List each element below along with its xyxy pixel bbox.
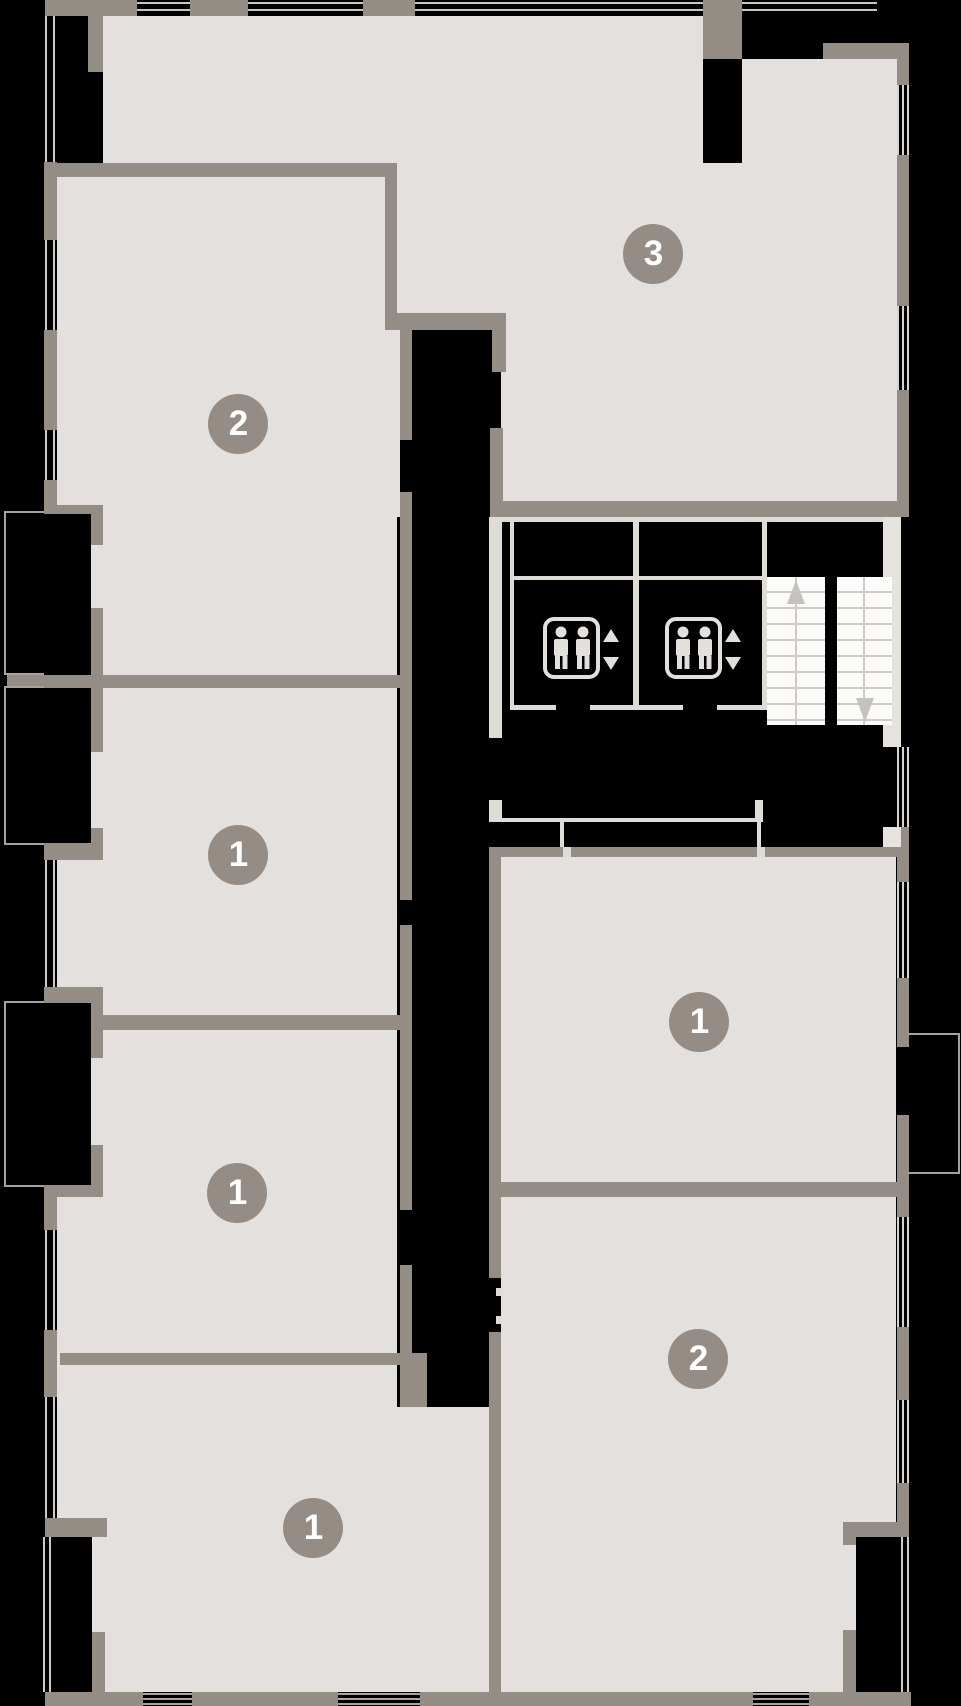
wall [192,1692,338,1706]
wall [44,1185,103,1197]
wall [400,925,412,1210]
wall [91,828,103,843]
elevator-passengers-icon [543,617,600,679]
wall [897,1483,909,1522]
wall [190,0,248,16]
stairs-up-arrow [787,580,805,604]
door-jamb [757,847,765,857]
wall [44,505,103,514]
door-jamb [496,1316,502,1324]
elevator-door-line [510,705,767,710]
wall [7,675,412,688]
wall [608,1692,753,1706]
wall [843,1630,856,1692]
floor-plan: 3 2 1 1 1 2 1 [0,0,961,1706]
balcony-outline [4,686,44,845]
wall [385,313,506,330]
stairs-down-arrow [856,698,874,722]
wall [91,688,103,752]
wall [843,1537,856,1545]
window [897,747,909,827]
wall [385,177,397,313]
balcony-outline [4,511,44,675]
window [897,306,909,390]
window [45,430,55,480]
wall [489,857,501,1182]
balcony-outline [908,1033,960,1174]
wall [44,162,57,240]
window [338,1693,420,1705]
elevator-shaft-wall [633,522,639,707]
wall [489,1182,909,1197]
wall [897,390,909,517]
wall [44,987,103,1003]
window [753,1693,809,1705]
wall [44,330,57,430]
window [897,1217,909,1327]
room-unit-1-bottom-ext [397,1407,489,1692]
wall [400,1353,427,1407]
wall [44,843,103,860]
wall [91,1145,103,1185]
elevator-door-gap [556,705,590,710]
wall [489,847,909,857]
window [897,1400,909,1483]
balcony-outline [4,1001,44,1187]
wall [44,163,397,177]
elevator-door-gap [683,705,717,710]
wall [490,501,909,517]
wall [92,1632,105,1692]
wall [489,1332,501,1692]
wall [400,1265,412,1353]
door-jamb [560,822,564,847]
unit-badge-3[interactable]: 3 [623,224,683,284]
wall [823,43,897,59]
elevator-up-down-arrows [725,629,741,671]
wall [103,1015,412,1030]
wall [400,330,412,440]
wall [44,1330,57,1397]
unit-badge-1-left-lower[interactable]: 1 [207,1163,267,1223]
window [897,85,909,155]
window [45,1397,55,1518]
unit-badge-2-right[interactable]: 2 [668,1329,728,1389]
window [897,882,909,978]
wall [60,1353,400,1365]
window [45,16,55,162]
wall [400,492,412,900]
core-left-wall [489,517,502,738]
wall [809,1692,911,1706]
stairwell-wall [883,827,901,847]
wall [91,608,103,675]
wall [843,1522,909,1537]
wall [88,13,103,72]
corridor [400,330,501,1407]
wall [45,1518,107,1537]
wall [703,0,742,59]
wall [897,1327,909,1400]
wall [897,155,909,306]
window [43,1537,51,1692]
room-unit-2-right [501,1197,896,1692]
core-top-line [501,517,896,522]
wall [45,1692,143,1706]
window [143,1693,192,1705]
door-jamb [563,847,571,857]
window [901,1537,909,1692]
wall [91,1003,103,1058]
room-unit-3-top-strip [103,16,703,170]
wall [420,1692,608,1706]
unit-badge-2-left[interactable]: 2 [208,394,268,454]
room-unit-3-top-right [742,59,897,170]
lobby-wall [501,818,755,822]
wall [492,330,506,372]
unit-badge-1-right[interactable]: 1 [669,992,729,1052]
elevator-passengers-icon [665,617,722,679]
window [45,860,55,987]
unit-badge-1-left-upper[interactable]: 1 [208,825,268,885]
elevator-shaft-wall [510,522,514,707]
wall [897,43,909,85]
wall [91,513,103,545]
window [45,240,55,330]
elevator-up-down-arrows [603,629,619,671]
window [45,1230,55,1330]
balcony-bottom-left [50,1537,92,1692]
door-jamb [496,1288,502,1296]
unit-badge-1-bottom[interactable]: 1 [283,1498,343,1558]
window-top-railing [45,2,877,11]
wall [44,1197,57,1230]
wall [363,0,415,16]
elevator-shaft-wall [510,576,767,580]
wall [489,1197,501,1278]
lobby-wall [755,800,763,822]
door-jamb [757,822,761,847]
